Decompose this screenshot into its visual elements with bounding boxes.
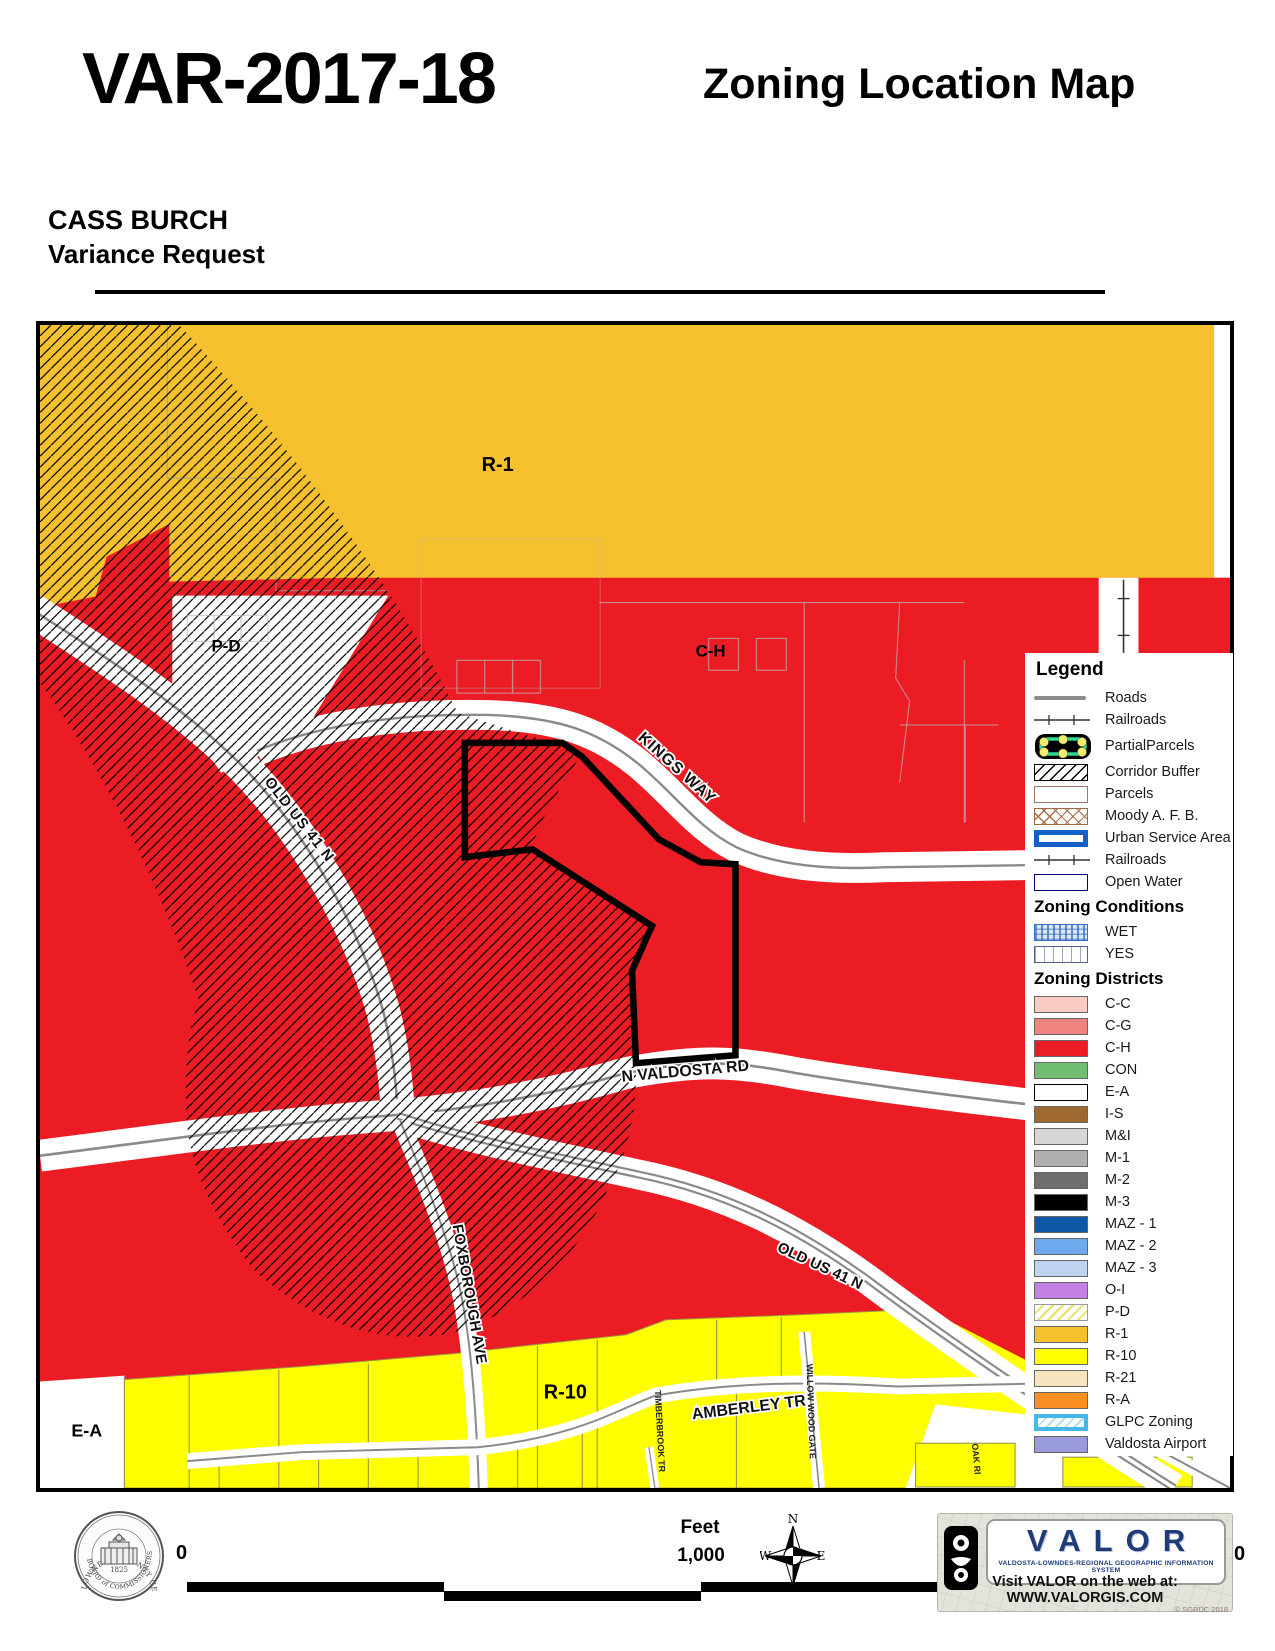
wet-swatch [1034, 924, 1088, 941]
valor-web-url: Visit VALOR on the web at: WWW.VALORGIS.… [938, 1574, 1232, 1606]
request-type: Variance Request [48, 239, 265, 270]
scalebar-end-label: 0 [1234, 1543, 1245, 1566]
valor-tagline: VALDOSTA-LOWNDES-REGIONAL GEOGRAPHIC INF… [988, 1560, 1224, 1574]
district-swatch-r10 [1034, 1348, 1088, 1365]
legend-row-yes: YES [1034, 943, 1233, 965]
district-swatch-m2 [1034, 1172, 1088, 1189]
zoning-conditions-title: Zoning Conditions [1034, 897, 1233, 917]
scalebar-segment [701, 1582, 958, 1592]
scalebar-units-label: Feet [655, 1517, 745, 1539]
district-swatch-ra [1034, 1392, 1088, 1409]
legend-row-district: MAZ - 3 [1034, 1257, 1233, 1279]
label-zone-ea: E-A [71, 1420, 102, 1440]
legend-row-wet: WET [1034, 921, 1233, 943]
district-swatch-is [1034, 1106, 1088, 1123]
legend-row-district: GLPC Zoning [1034, 1411, 1233, 1433]
railroad-icon [1034, 714, 1092, 726]
legend-row-corridor-buffer: Corridor Buffer [1034, 761, 1233, 783]
valor-logo: VALOR VALDOSTA-LOWNDES-REGIONAL GEOGRAPH… [937, 1513, 1233, 1612]
district-swatch-m3 [1034, 1194, 1088, 1211]
r10-lot-se1 [916, 1443, 1015, 1487]
zoning-districts-title: Zoning Districts [1034, 969, 1233, 989]
legend-row-district: M-3 [1034, 1191, 1233, 1213]
scalebar-mid-label: 1,000 [655, 1545, 747, 1567]
partial-parcels-icon [1034, 733, 1092, 760]
legend-row-district: M-1 [1034, 1147, 1233, 1169]
applicant-name: CASS BURCH [48, 205, 228, 236]
moody-afb-swatch [1034, 808, 1088, 825]
open-water-swatch [1034, 874, 1088, 891]
legend-row-railroads2: Railroads [1034, 849, 1233, 871]
header-divider [95, 290, 1105, 294]
legend-title: Legend [1036, 659, 1233, 681]
legend-row-parcels: Parcels [1034, 783, 1233, 805]
case-number-title: VAR-2017-18 [82, 38, 495, 120]
road-timberbrook [649, 1447, 655, 1488]
yes-swatch [1034, 946, 1088, 963]
label-zone-ch: C-H [696, 641, 726, 660]
legend-row-district: O-I [1034, 1279, 1233, 1301]
compass-w-label: W [760, 1549, 772, 1563]
legend-row-district: M&I [1034, 1125, 1233, 1147]
legend-panel: Legend Roads Railroads P [1025, 653, 1233, 1456]
label-zone-r10: R-10 [544, 1381, 587, 1403]
district-swatch-maz2 [1034, 1238, 1088, 1255]
right-edge-road [1214, 325, 1230, 578]
valor-copyright: © SGRDC 2018 [1175, 1605, 1228, 1614]
zoning-map-page: VAR-2017-18 Zoning Location Map CASS BUR… [0, 0, 1275, 1651]
railroad-icon [1034, 854, 1092, 866]
scalebar-segment [187, 1582, 444, 1592]
legend-row-district: C-G [1034, 1015, 1233, 1037]
district-swatch-cc [1034, 996, 1088, 1013]
scalebar-segment [444, 1591, 701, 1601]
district-swatch-cg [1034, 1018, 1088, 1035]
urban-service-area-swatch [1034, 830, 1088, 847]
district-swatch-ch [1034, 1040, 1088, 1057]
district-swatch-mi [1034, 1128, 1088, 1145]
legend-row-district: MAZ - 1 [1034, 1213, 1233, 1235]
district-swatch-glpc [1034, 1414, 1088, 1431]
legend-row-district: CON [1034, 1059, 1233, 1081]
county-seal: LOWNDES COUNTY GEORGIA BOARD of COMMISSI… [73, 1510, 165, 1602]
district-swatch-maz1 [1034, 1216, 1088, 1233]
scalebar-zero-label: 0 [176, 1542, 187, 1565]
corridor-buffer-swatch [1034, 764, 1088, 781]
legend-row-district: C-H [1034, 1037, 1233, 1059]
label-zone-pd: P-D [211, 636, 240, 655]
legend-row-district: P-D [1034, 1301, 1233, 1323]
document-title: Zoning Location Map [703, 60, 1135, 109]
valor-wordmark: VALOR [988, 1523, 1224, 1559]
compass-e-label: E [817, 1549, 826, 1563]
legend-row-roads: Roads [1034, 687, 1233, 709]
district-swatch-maz3 [1034, 1260, 1088, 1277]
district-swatch-oi [1034, 1282, 1088, 1299]
legend-row-district: R-A [1034, 1389, 1233, 1411]
legend-row-open-water: Open Water [1034, 871, 1233, 893]
legend-row-district: Valdosta Airport [1034, 1433, 1233, 1455]
district-swatch-con [1034, 1062, 1088, 1079]
legend-row-urban-service: Urban Service Area [1034, 827, 1233, 849]
seal-year: 1825 [110, 1566, 128, 1574]
label-zone-r1: R-1 [482, 454, 514, 476]
parcels-swatch [1034, 786, 1088, 803]
legend-row-moody: Moody A. F. B. [1034, 805, 1233, 827]
legend-row-district: MAZ - 2 [1034, 1235, 1233, 1257]
legend-row-district: I-S [1034, 1103, 1233, 1125]
district-swatch-ea [1034, 1084, 1088, 1101]
district-swatch-m1 [1034, 1150, 1088, 1167]
legend-row-district: R-1 [1034, 1323, 1233, 1345]
legend-row-district: R-10 [1034, 1345, 1233, 1367]
road-line-icon [1034, 696, 1092, 700]
compass-rose-icon: N W E [760, 1512, 826, 1592]
legend-row-district: E-A [1034, 1081, 1233, 1103]
district-swatch-pd [1034, 1304, 1088, 1321]
district-swatch-r21 [1034, 1370, 1088, 1387]
legend-row-partialparcels: PartialParcels [1034, 731, 1233, 761]
road-railspur-north [1099, 578, 1139, 658]
district-swatch-airport [1034, 1436, 1088, 1453]
legend-row-railroads: Railroads [1034, 709, 1233, 731]
legend-row-district: M-2 [1034, 1169, 1233, 1191]
compass-n-label: N [788, 1512, 799, 1526]
legend-row-district: R-21 [1034, 1367, 1233, 1389]
legend-row-district: C-C [1034, 993, 1233, 1015]
district-swatch-r1 [1034, 1326, 1088, 1343]
